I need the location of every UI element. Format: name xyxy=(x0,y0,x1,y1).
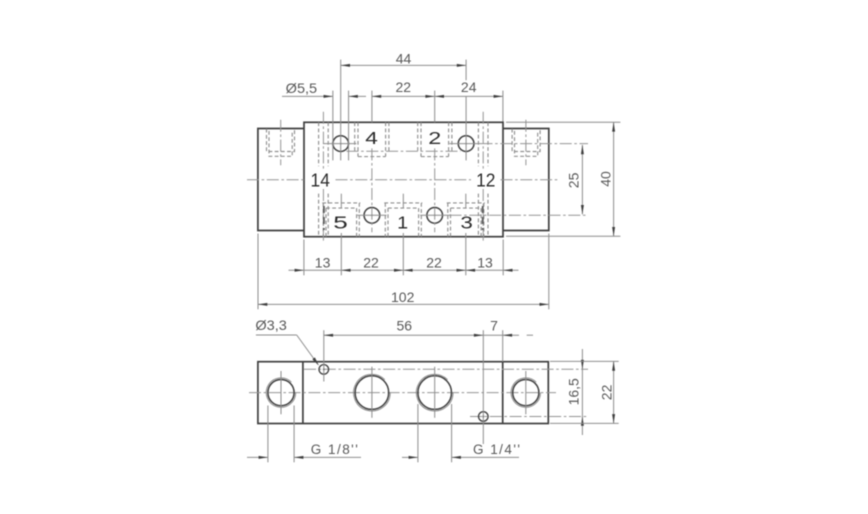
svg-text:22: 22 xyxy=(363,254,379,270)
svg-text:56: 56 xyxy=(397,318,413,334)
svg-text:12: 12 xyxy=(476,171,495,191)
svg-text:102: 102 xyxy=(391,289,415,305)
svg-text:G 1/4'': G 1/4'' xyxy=(473,442,520,457)
svg-text:Ø3,3: Ø3,3 xyxy=(255,317,287,333)
svg-text:25: 25 xyxy=(566,172,582,188)
svg-text:5: 5 xyxy=(333,212,348,232)
svg-text:40: 40 xyxy=(597,171,613,187)
svg-text:24: 24 xyxy=(461,79,477,95)
svg-text:1: 1 xyxy=(397,212,408,232)
svg-text:14: 14 xyxy=(311,171,330,191)
svg-text:44: 44 xyxy=(396,50,412,66)
svg-text:22: 22 xyxy=(396,79,412,95)
svg-text:3: 3 xyxy=(460,212,473,232)
svg-text:13: 13 xyxy=(315,254,331,270)
svg-text:Ø5,5: Ø5,5 xyxy=(286,80,318,96)
svg-text:7: 7 xyxy=(490,318,498,334)
svg-text:22: 22 xyxy=(426,254,442,270)
svg-text:16,5: 16,5 xyxy=(566,378,582,405)
svg-text:22: 22 xyxy=(598,384,614,400)
svg-text:4: 4 xyxy=(365,128,378,148)
svg-text:13: 13 xyxy=(477,254,493,270)
svg-text:2: 2 xyxy=(428,128,441,148)
svg-text:G 1/8'': G 1/8'' xyxy=(311,442,358,457)
